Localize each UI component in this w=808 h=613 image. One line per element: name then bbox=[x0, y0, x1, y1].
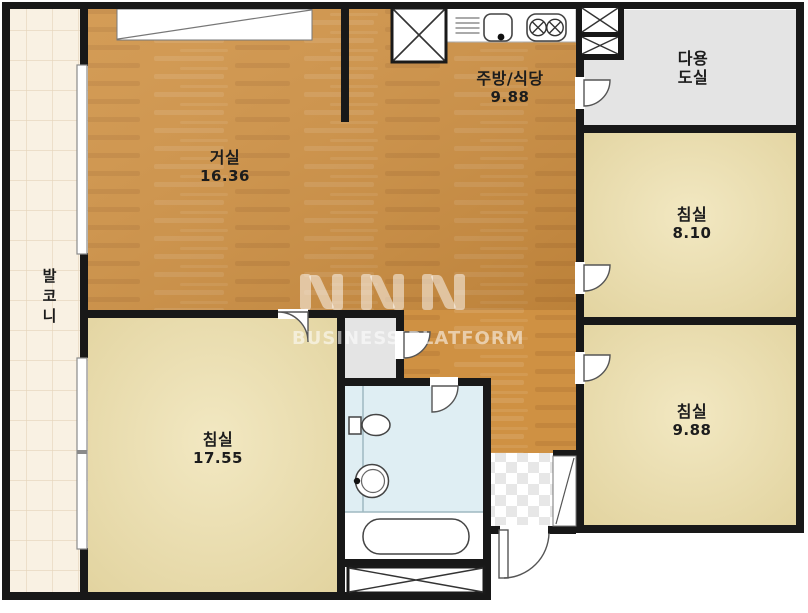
bedroom-left-area: 17.55 bbox=[168, 450, 268, 468]
toilet-tank-symbol bbox=[349, 417, 361, 434]
hallway-floor-lower bbox=[491, 386, 576, 453]
floors bbox=[10, 9, 796, 592]
floor-plan: 거실 16.36 주방/식당 9.88 다용 도실 침실 8.10 침실 9.8… bbox=[0, 0, 808, 613]
bedroom-bottom-right-area: 9.88 bbox=[642, 422, 742, 440]
utility-name-line1: 다용 bbox=[653, 50, 733, 69]
bedroom-top-right-area: 8.10 bbox=[642, 225, 742, 243]
bedroom-bottom-right-name: 침실 bbox=[642, 403, 742, 422]
bedroom-top-right-label: 침실 8.10 bbox=[642, 206, 742, 243]
living-room-label: 거실 16.36 bbox=[173, 149, 277, 186]
living-room-area: 16.36 bbox=[173, 168, 277, 186]
kitchen-label: 주방/식당 9.88 bbox=[450, 70, 570, 107]
shoe-closet-symbol bbox=[553, 456, 576, 526]
toilet-symbol bbox=[362, 415, 390, 436]
balcony-label: 발코니 bbox=[30, 268, 60, 368]
front-door-arc bbox=[504, 533, 549, 578]
dressing-room-floor bbox=[345, 318, 396, 378]
living-room-name: 거실 bbox=[173, 149, 277, 168]
bathtub-symbol bbox=[363, 519, 469, 554]
front-door-leaf bbox=[499, 530, 508, 578]
kitchen-name: 주방/식당 bbox=[450, 70, 570, 89]
bedroom-top-right-name: 침실 bbox=[642, 206, 742, 225]
entrance-floor bbox=[491, 453, 553, 526]
duct-boxes bbox=[576, 2, 624, 60]
utility-name-line2: 도실 bbox=[653, 69, 733, 88]
bedroom-left-label: 침실 17.55 bbox=[168, 431, 268, 468]
living-window bbox=[77, 65, 87, 254]
kitchen-area: 9.88 bbox=[450, 89, 570, 107]
bedroom-bottom-right-label: 침실 9.88 bbox=[642, 403, 742, 440]
utility-room-label: 다용 도실 bbox=[653, 50, 733, 88]
storage-box bbox=[348, 567, 484, 593]
floor-plan-drawing bbox=[0, 0, 808, 613]
bedroom-left-name: 침실 bbox=[168, 431, 268, 450]
